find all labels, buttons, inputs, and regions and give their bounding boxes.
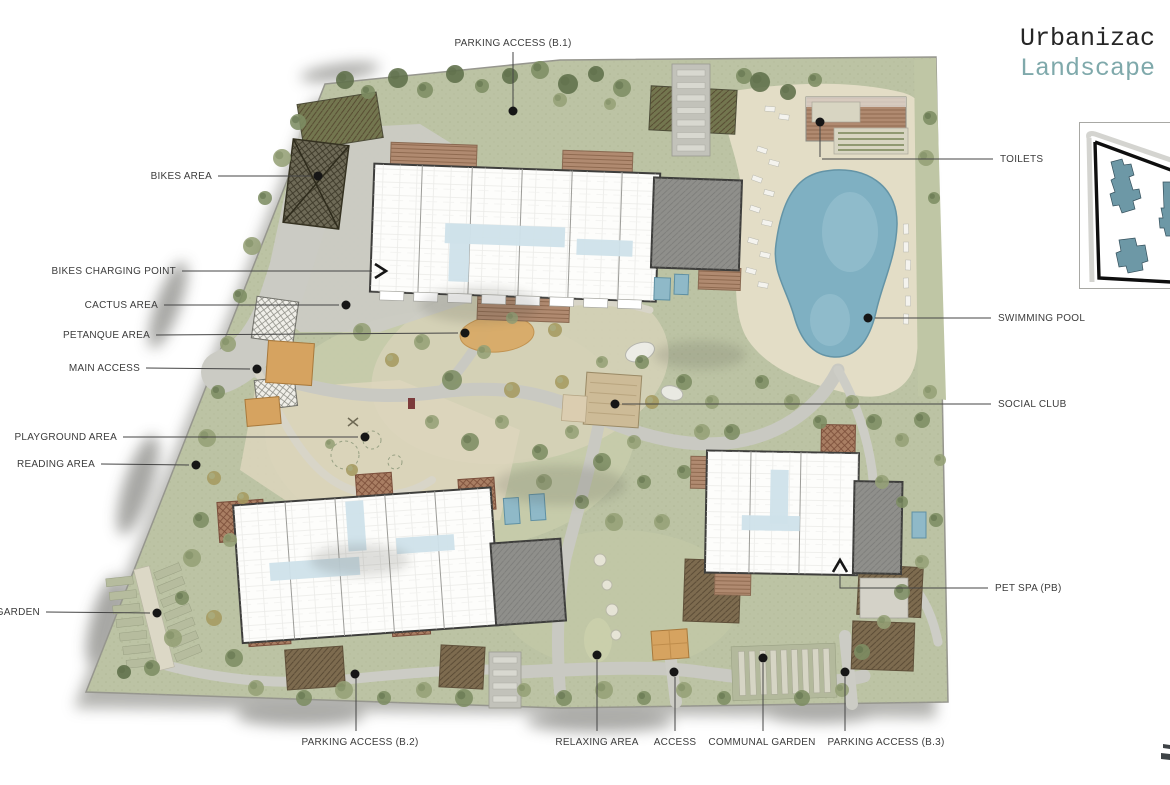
callout-garden: GARDEN xyxy=(0,607,40,619)
callout-swimming-pool: SWIMMING POOL xyxy=(998,313,1085,325)
bikes-area-structure xyxy=(283,139,349,229)
title-line-2: Landscape xyxy=(1020,54,1155,84)
callout-access: ACCESS xyxy=(654,737,697,749)
callout-cactus-area: CACTUS AREA xyxy=(85,300,158,312)
callout-bikes-charging: BIKES CHARGING POINT xyxy=(52,266,176,278)
callout-relaxing-area: RELAXING AREA xyxy=(555,737,638,749)
callout-parking-access-b1: PARKING ACCESS (B.1) xyxy=(454,38,571,50)
callout-main-access: MAIN ACCESS xyxy=(69,363,140,375)
communal-garden-beds xyxy=(731,643,837,701)
drawing-title: Urbanizac Landscape xyxy=(1020,24,1155,84)
callout-parking-access-b2: PARKING ACCESS (B.2) xyxy=(301,737,418,749)
callout-bikes-area: BIKES AREA xyxy=(151,171,212,183)
site-key-map xyxy=(1079,122,1170,290)
callout-communal-garden: COMMUNAL GARDEN xyxy=(708,737,815,749)
title-line-1: Urbanizac xyxy=(1020,24,1155,54)
logo-fragment xyxy=(1156,742,1170,766)
access-kiosk xyxy=(651,629,689,660)
site-plan-illustration xyxy=(0,0,1170,785)
callout-petanque-area: PETANQUE AREA xyxy=(63,330,150,342)
plunge-pool xyxy=(912,512,926,538)
callout-reading-area: READING AREA xyxy=(17,459,95,471)
cactus-area-structure xyxy=(251,296,298,343)
callout-social-club: SOCIAL CLUB xyxy=(998,399,1067,411)
landscape-masterplan-page: { "title": { "line1": "Urbanizac", "line… xyxy=(0,0,1170,785)
callout-toilets: TOILETS xyxy=(1000,154,1043,166)
callout-playground-area: PLAYGROUND AREA xyxy=(15,432,117,444)
callout-pet-spa: PET SPA (PB) xyxy=(995,583,1062,595)
callout-parking-access-b3: PARKING ACCESS (B.3) xyxy=(827,737,944,749)
